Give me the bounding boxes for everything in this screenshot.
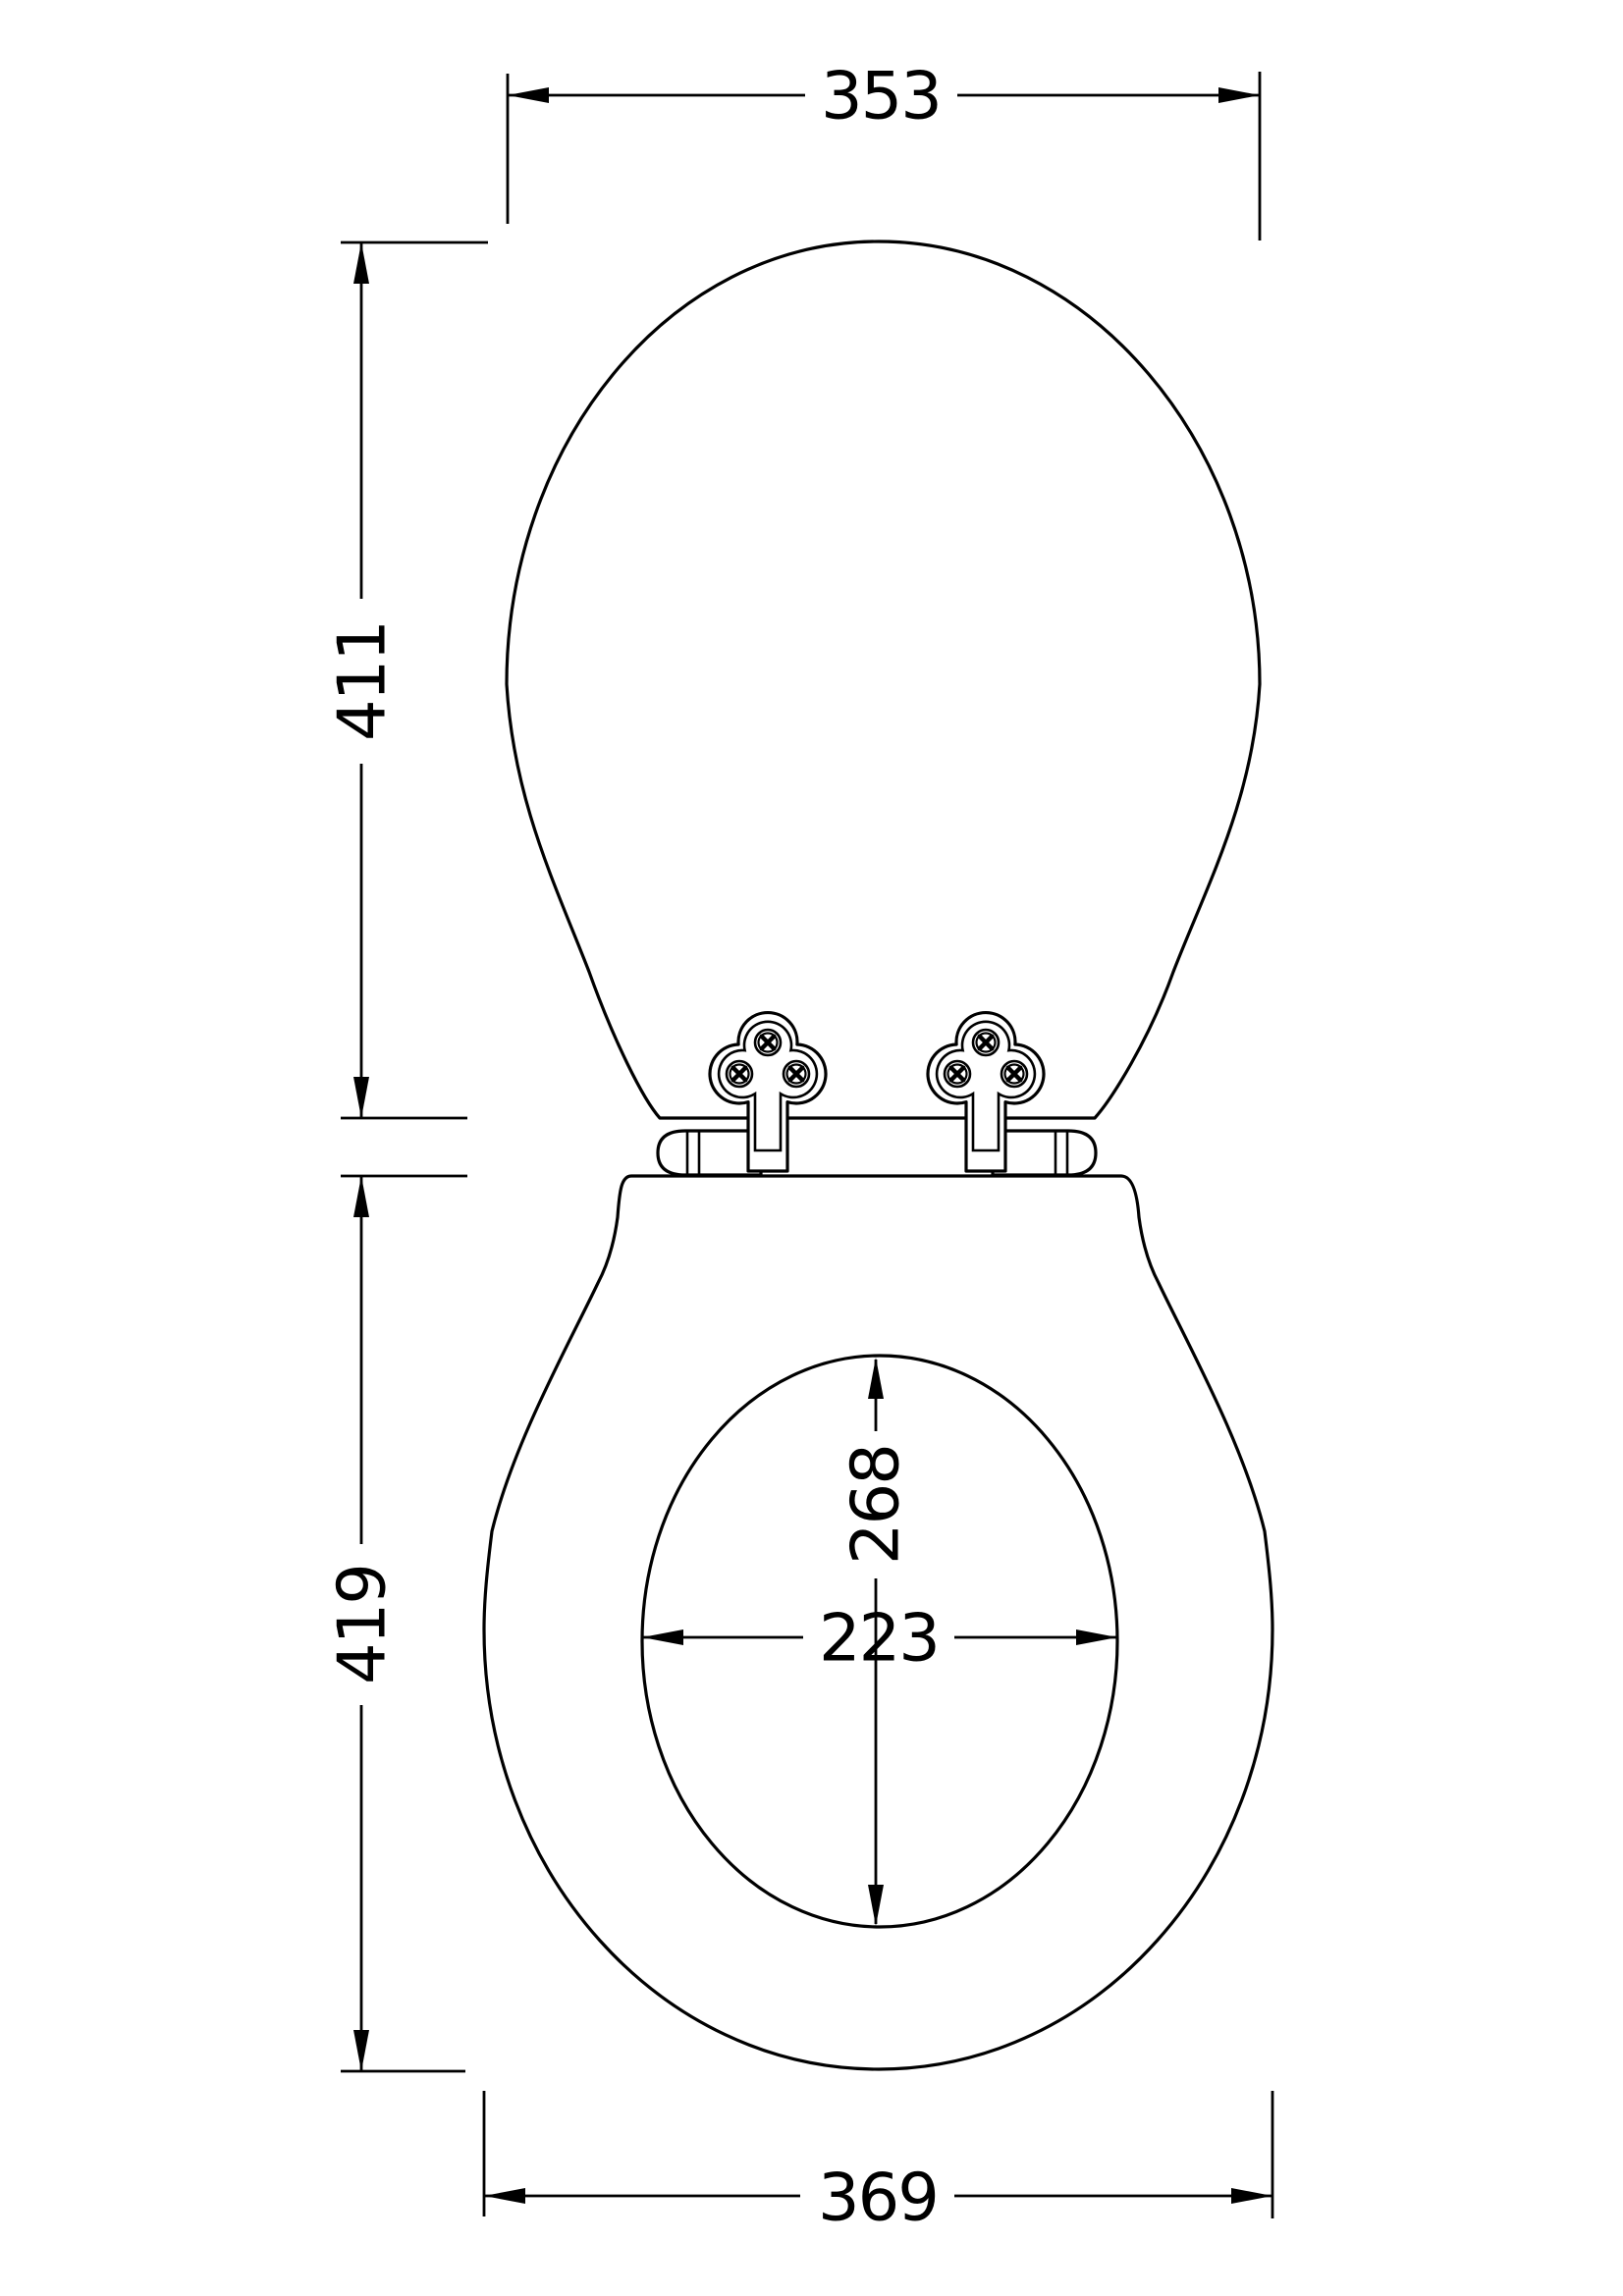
hinge-bar-left-cap <box>658 1131 761 1175</box>
drawing-canvas: 353 411 419 268 223 369 <box>0 0 1623 2296</box>
lid-outline <box>507 241 1260 1118</box>
dimension-drawing: 353 411 419 268 223 369 <box>0 0 1623 2296</box>
dim-label-seat-length: 419 <box>323 1565 400 1684</box>
hinge-bar-right-cap <box>993 1131 1096 1175</box>
dim-label-seat-width: 369 <box>818 2159 938 2235</box>
dim-seat-width: 369 <box>484 2091 1272 2235</box>
dim-lid-width: 353 <box>508 57 1260 240</box>
dim-lid-length: 411 <box>323 242 488 1118</box>
dim-label-aperture-width: 223 <box>819 1599 939 1676</box>
dim-seat-length: 419 <box>323 1176 467 2071</box>
dim-label-lid-length: 411 <box>323 621 400 741</box>
dim-label-aperture-length: 268 <box>837 1445 913 1565</box>
dim-label-lid-width: 353 <box>821 57 941 133</box>
